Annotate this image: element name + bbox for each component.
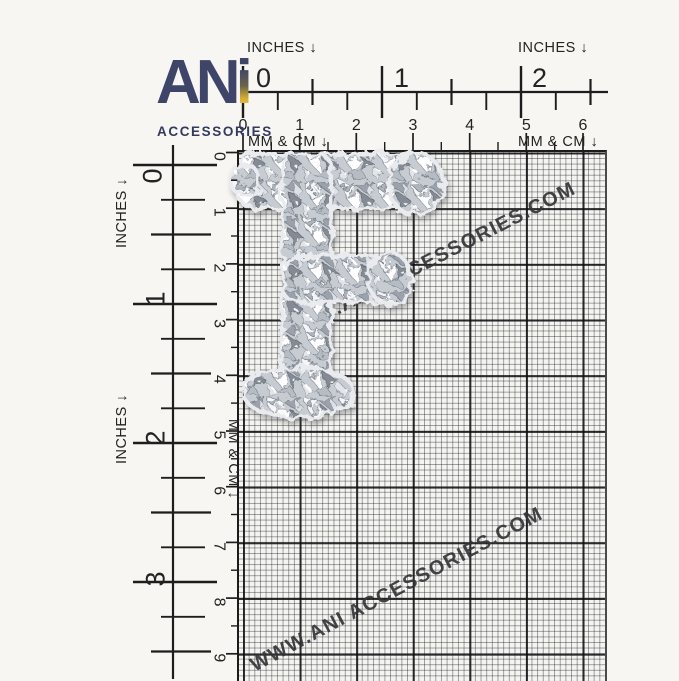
left-cm-number: 4 xyxy=(210,375,227,384)
top-cm-number: 5 xyxy=(522,117,531,134)
left-cm-number: 3 xyxy=(210,319,227,328)
logo-text-i: i xyxy=(236,48,254,117)
top-inches-label-left: INCHES ↓ xyxy=(247,40,317,56)
top-inches-label-right: INCHES ↓ xyxy=(518,40,588,56)
top-inch-number: 2 xyxy=(532,63,547,93)
top-cm-number: 2 xyxy=(352,117,361,134)
left-cm-number: 1 xyxy=(210,208,227,217)
left-cm-number: 9 xyxy=(210,653,227,662)
left-inch-number: 0 xyxy=(137,168,167,183)
top-cm-number: 4 xyxy=(465,117,474,134)
product-photo: WWW.ANI ACCESSORIES.COM WWW.ANI ACCESSOR… xyxy=(0,0,679,679)
left-inch-number: 3 xyxy=(140,571,170,586)
left-cm-number: 2 xyxy=(210,263,227,272)
top-mmcm-label-right: MM & CM ↓ xyxy=(518,134,598,150)
left-inch-number: 2 xyxy=(140,430,170,445)
top-cm-number: 3 xyxy=(409,117,418,134)
left-cm-number: 6 xyxy=(210,486,227,495)
left-cm-number: 5 xyxy=(210,431,227,440)
top-cm-number: 6 xyxy=(579,117,588,134)
letter-f-crystals xyxy=(230,153,443,417)
logo-text-an: AN xyxy=(156,48,236,117)
left-inches-label-upper: INCHES ↓ xyxy=(114,178,130,248)
left-cm-number: 8 xyxy=(210,598,227,607)
top-inch-number: 0 xyxy=(256,63,271,93)
brand-subtitle: ACCESSORIES xyxy=(157,124,273,139)
left-inches-label-lower: INCHES ↓ xyxy=(114,394,130,464)
left-inch-number: 1 xyxy=(140,291,170,306)
top-inch-number: 1 xyxy=(394,63,409,93)
left-cm-number: 0 xyxy=(210,152,227,161)
brand-logo: ANi xyxy=(156,52,254,114)
top-cm-number: 1 xyxy=(295,117,304,134)
rhinestone-letter-f-patch: F xyxy=(230,144,450,436)
left-cm-number: 7 xyxy=(210,542,227,551)
